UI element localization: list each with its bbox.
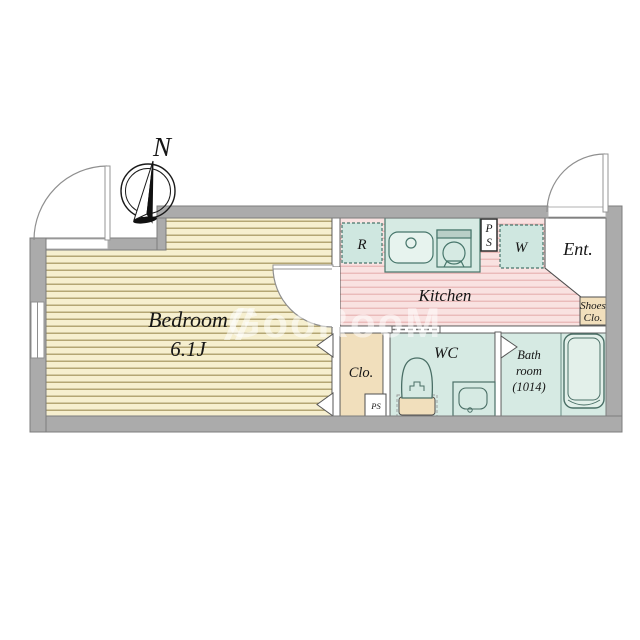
bathroom-label-line3: (1014) xyxy=(512,380,545,394)
toilet-bowl-icon xyxy=(402,358,433,398)
bedroom-label: Bedroom xyxy=(148,307,228,332)
outer-wall-bottom xyxy=(30,416,622,432)
entrance-door-leaf xyxy=(603,154,608,212)
balcony-door-leaf xyxy=(105,166,110,240)
closet-label: Clo. xyxy=(349,365,374,381)
washer-label: W xyxy=(515,240,529,256)
pipe-space-label-s: S xyxy=(486,237,492,249)
stove-grill-icon xyxy=(437,230,471,238)
bathtub-icon xyxy=(564,334,604,408)
wc-label: WC xyxy=(434,345,458,362)
closet-pipe-space-label: PS xyxy=(370,401,381,411)
watermark-text: GooRooM xyxy=(228,299,443,346)
shoes-closet-label-line1: Shoes xyxy=(580,300,606,312)
wall-wc-bath xyxy=(495,332,501,416)
faucet-icon xyxy=(406,238,416,248)
north-label: N xyxy=(152,132,173,162)
bedroom-size-label: 6.1J xyxy=(170,337,207,361)
refrigerator-label: R xyxy=(356,237,366,253)
entrance-label: Ent. xyxy=(562,239,593,259)
bathroom-label-line2: room xyxy=(516,364,542,378)
pipe-space-label-p: P xyxy=(484,223,492,235)
wall-bedroom-kitchen-upper xyxy=(332,218,340,267)
watermark: GooRooM xyxy=(224,299,442,346)
wall-kitchen-bath xyxy=(440,326,607,333)
toilet-tank-icon xyxy=(399,397,435,415)
bathroom-label-line1: Bath xyxy=(517,348,541,362)
outer-wall-right xyxy=(606,206,622,432)
floor-plan: N Bedroom 6.1J Kitchen R W P S Ent. Shoe… xyxy=(0,0,640,640)
bedroom-door-leaf xyxy=(273,265,333,269)
outer-wall-top xyxy=(157,206,548,218)
shoes-closet-label-line2: Clo. xyxy=(584,312,603,324)
entrance-door-opening xyxy=(548,207,606,217)
